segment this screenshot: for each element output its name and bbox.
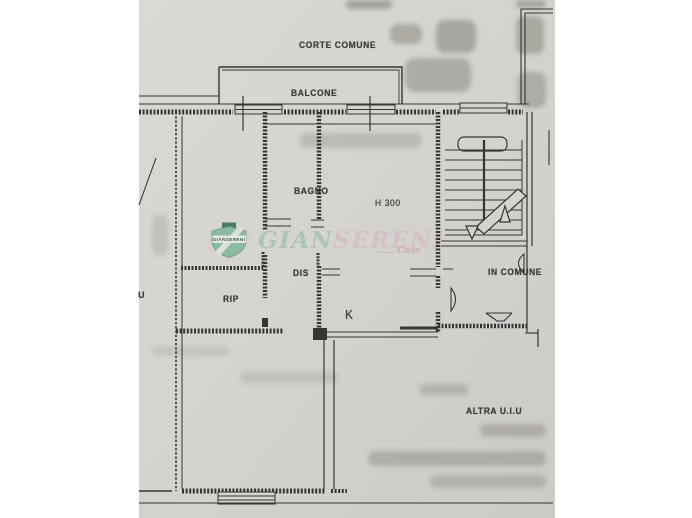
scanned-floorplan-page: GIANSERENI GIANSERENI Case: [0, 0, 692, 518]
label-bathroom: BAGNO: [294, 186, 329, 196]
label-storage: RIP: [223, 294, 239, 304]
label-shared-area: IN COMUNE: [488, 267, 542, 277]
label-hallway: DIS: [293, 268, 309, 278]
label-other-unit: ALTRA U.I.U: [466, 406, 522, 416]
label-left-edge-cut: U: [138, 290, 145, 300]
label-kitchen: K: [345, 308, 354, 323]
label-courtyard: CORTE COMUNE: [299, 40, 376, 50]
label-balcony: BALCONE: [291, 88, 337, 98]
plan-labels: CORTE COMUNE BALCONE BAGNO H 300 DIS RIP…: [0, 0, 692, 518]
label-ceiling-height: H 300: [375, 198, 401, 208]
